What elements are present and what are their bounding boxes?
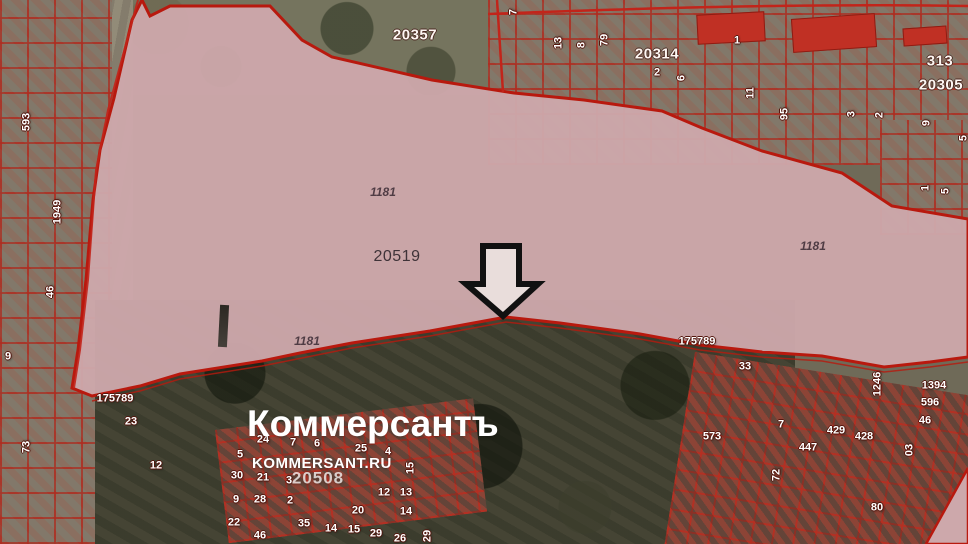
- map-vector-overlay: [0, 0, 968, 544]
- highlighted-parcel-polygon: [72, 0, 968, 396]
- kommersant-url-watermark: KOMMERSANT.RU: [252, 455, 392, 472]
- road-line-top: [488, 5, 968, 14]
- cadastral-map: 5931949469732035771387920314261119531320…: [0, 0, 968, 544]
- pink-parcel-corner: [926, 468, 968, 544]
- kommersant-watermark: Коммерсантъ: [247, 403, 499, 445]
